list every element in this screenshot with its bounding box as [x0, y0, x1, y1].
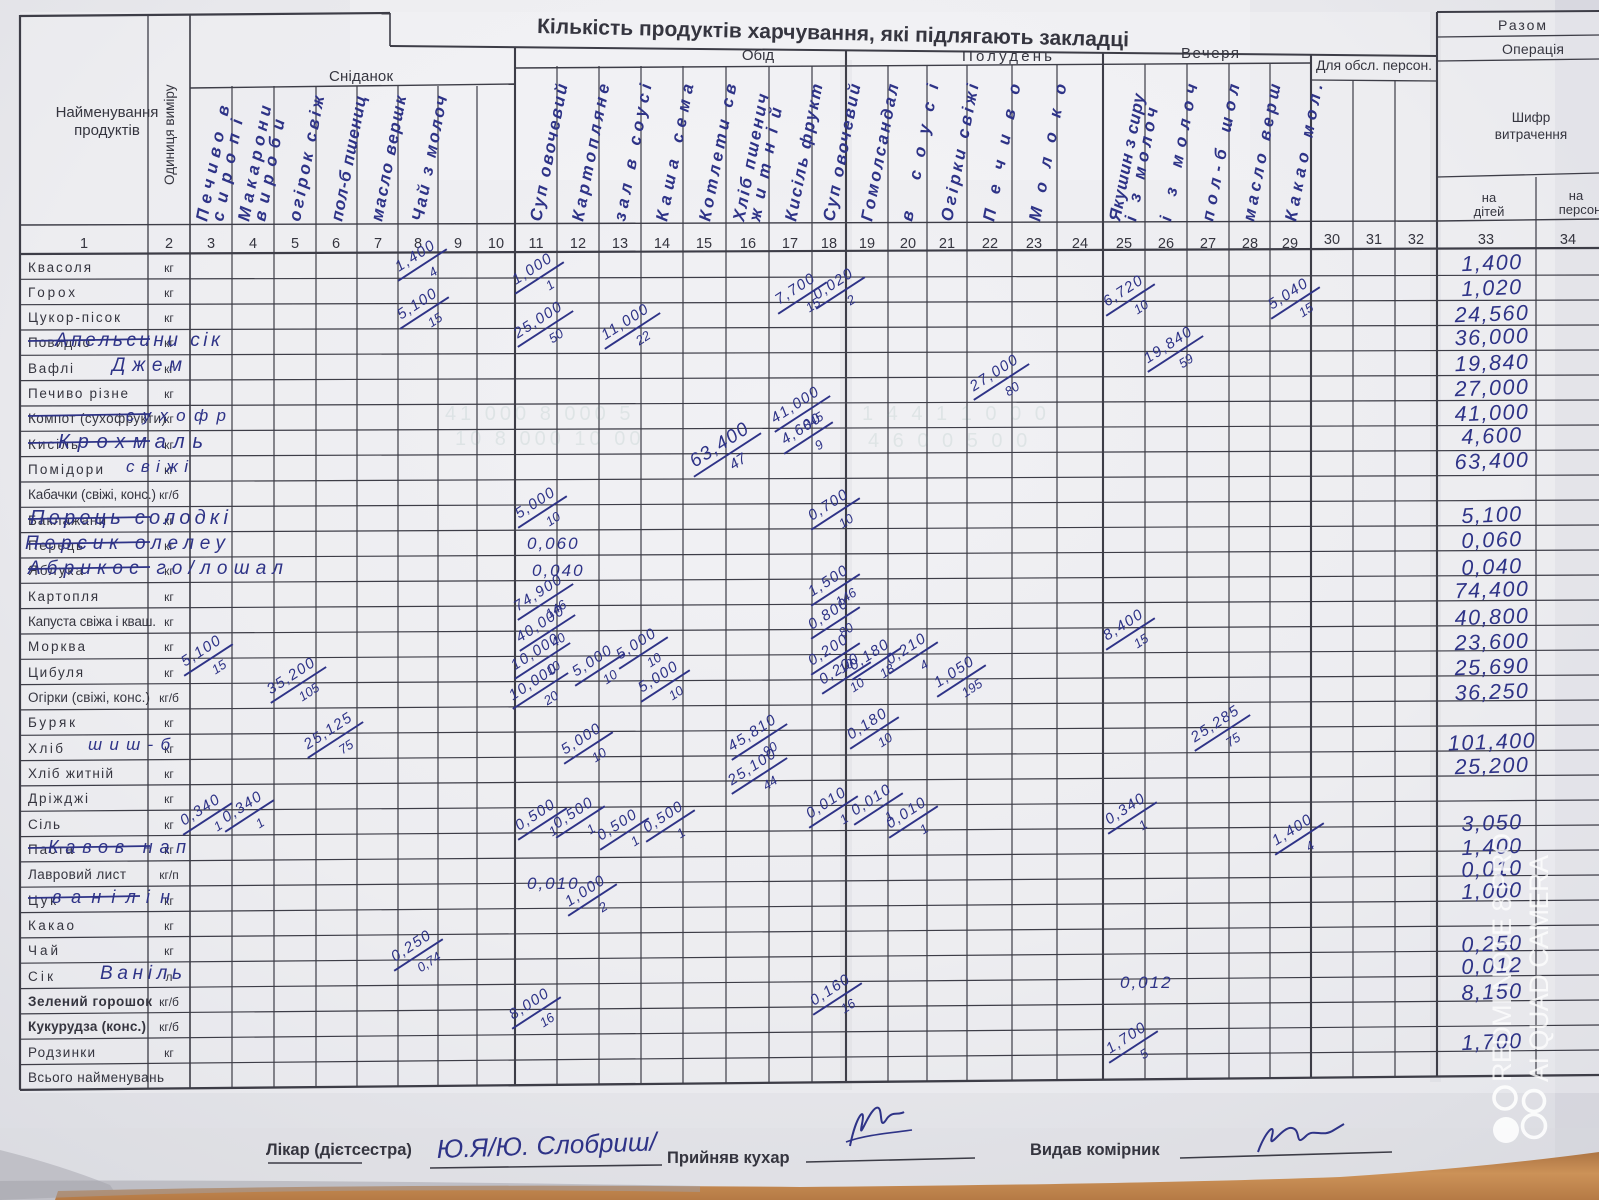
svg-text:Для обсл. персон.: Для обсл. персон. [1316, 57, 1432, 73]
svg-text:21: 21 [939, 236, 955, 252]
svg-text:на: на [1482, 190, 1497, 205]
svg-text:Чай: Чай [28, 943, 58, 958]
svg-text:Цибуля: Цибуля [28, 665, 83, 680]
svg-text:Печиво різне: Печиво різне [28, 386, 128, 401]
svg-text:кг: кг [164, 818, 174, 832]
svg-text:101,400: 101,400 [1447, 728, 1536, 755]
svg-text:10 8 000 10 00: 10 8 000 10 00 [455, 428, 644, 450]
svg-text:кг: кг [164, 944, 174, 958]
svg-text:Сік: Сік [28, 969, 53, 984]
svg-text:кг: кг [164, 615, 174, 629]
svg-text:23,600: 23,600 [1453, 629, 1530, 656]
svg-text:кг: кг [164, 387, 174, 401]
svg-text:27: 27 [1200, 236, 1216, 252]
svg-text:13: 13 [612, 236, 628, 252]
svg-text:кг/б: кг/б [159, 691, 179, 705]
svg-text:кг/б: кг/б [159, 995, 179, 1009]
svg-text:1,020: 1,020 [1461, 275, 1523, 301]
svg-text:Лікар (дієтсестра): Лікар (дієтсестра) [266, 1141, 412, 1159]
svg-text:7: 7 [374, 236, 382, 252]
svg-text:кг: кг [164, 261, 174, 275]
svg-text:продуктів: продуктів [74, 122, 140, 139]
svg-text:Кабачки (свіжі, конс.): Кабачки (свіжі, конс.) [28, 487, 156, 502]
svg-text:5: 5 [291, 236, 299, 252]
svg-text:12: 12 [570, 236, 586, 252]
svg-text:16: 16 [740, 236, 756, 252]
svg-text:Огірки (свіжі, конс.): Огірки (свіжі, конс.) [28, 690, 150, 705]
svg-text:кг: кг [164, 792, 174, 806]
svg-text:Найменування: Найменування [56, 104, 159, 121]
svg-text:15: 15 [696, 236, 712, 252]
svg-text:Всього найменувань: Всього найменувань [28, 1070, 164, 1085]
svg-text:10: 10 [488, 236, 504, 252]
svg-text:дітей: дітей [1474, 204, 1505, 219]
svg-text:витрачення: витрачення [1495, 127, 1567, 142]
svg-text:Хліб житній: Хліб житній [28, 766, 113, 781]
svg-text:6: 6 [332, 236, 340, 252]
svg-text:27,000: 27,000 [1453, 375, 1530, 402]
svg-text:17: 17 [782, 236, 798, 252]
svg-text:Картопля: Картопля [28, 589, 98, 604]
svg-text:25,200: 25,200 [1453, 753, 1530, 780]
svg-text:Видав комірник: Видав комірник [1030, 1141, 1160, 1159]
svg-text:19: 19 [859, 236, 875, 252]
svg-text:кг: кг [164, 919, 174, 933]
svg-text:20: 20 [900, 236, 916, 252]
svg-text:0,040: 0,040 [1461, 554, 1523, 580]
svg-text:кг: кг [164, 716, 174, 730]
svg-text:кг: кг [164, 1046, 174, 1060]
svg-text:кг/б: кг/б [159, 1020, 179, 1034]
svg-text:Зелений горошок: Зелений горошок [28, 994, 152, 1009]
svg-text:кг/п: кг/п [159, 868, 178, 882]
svg-text:кг: кг [164, 666, 174, 680]
svg-text:Сніданок: Сніданок [329, 68, 393, 85]
svg-text:Сіль: Сіль [28, 817, 60, 832]
svg-text:персон: персон [1559, 202, 1599, 217]
svg-text:40,800: 40,800 [1454, 604, 1530, 631]
svg-text:Шифр: Шифр [1512, 110, 1551, 125]
svg-text:0,040: 0,040 [532, 561, 585, 580]
svg-text:Операція: Операція [1502, 41, 1564, 57]
svg-text:1 4 4 1 1 0 0 0: 1 4 4 1 1 0 0 0 [862, 403, 1050, 425]
svg-text:кг: кг [164, 590, 174, 604]
svg-text:кг: кг [164, 767, 174, 781]
svg-text:кг: кг [164, 311, 174, 325]
svg-text:кг/б: кг/б [159, 488, 179, 502]
svg-text:28: 28 [1242, 236, 1258, 252]
svg-text:кг: кг [164, 640, 174, 654]
svg-text:26: 26 [1158, 236, 1174, 252]
svg-text:Обід: Обід [742, 47, 775, 64]
svg-text:29: 29 [1282, 236, 1298, 252]
svg-text:9: 9 [454, 236, 462, 252]
svg-text:Какао: Какао [28, 918, 74, 933]
svg-text:Кукурудза (конс.): Кукурудза (конс.) [28, 1019, 146, 1034]
svg-text:Прийняв кухар: Прийняв кухар [667, 1149, 790, 1167]
svg-text:23: 23 [1026, 236, 1042, 252]
svg-text:AI QUAD CAMERA: AI QUAD CAMERA [1524, 852, 1554, 1082]
svg-text:Капуста свіжа і кваш.: Капуста свіжа і кваш. [28, 614, 156, 629]
svg-text:18: 18 [821, 236, 837, 252]
svg-text:0,060: 0,060 [1461, 527, 1523, 553]
svg-text:Помідори: Помідори [28, 462, 103, 477]
svg-text:Одиниця виміру: Одиниця виміру [162, 84, 177, 185]
svg-text:5,100: 5,100 [1461, 502, 1523, 528]
svg-text:0,010: 0,010 [527, 874, 580, 893]
svg-text:Кисіль: Кисіль [28, 437, 78, 452]
svg-text:36,250: 36,250 [1454, 679, 1530, 706]
svg-text:22: 22 [982, 236, 998, 252]
svg-text:4 6 0 0 5 0 0: 4 6 0 0 5 0 0 [868, 430, 1031, 452]
svg-text:на: на [1569, 188, 1584, 203]
svg-text:Разом: Разом [1498, 17, 1546, 33]
svg-text:41 000 8 000 5: 41 000 8 000 5 [445, 403, 634, 425]
svg-text:34: 34 [1560, 232, 1576, 248]
svg-text:2: 2 [165, 236, 173, 252]
svg-text:14: 14 [654, 236, 670, 252]
svg-text:31: 31 [1366, 232, 1382, 248]
svg-text:Хліб: Хліб [28, 741, 63, 756]
svg-text:4,600: 4,600 [1461, 423, 1523, 449]
svg-text:Квасоля: Квасоля [28, 260, 91, 275]
svg-text:REDMI NOTE 8 PRO: REDMI NOTE 8 PRO [1487, 830, 1517, 1082]
svg-text:36,000: 36,000 [1454, 324, 1530, 351]
svg-text:25: 25 [1116, 236, 1132, 252]
svg-text:11: 11 [528, 236, 543, 252]
svg-text:кг: кг [164, 286, 174, 300]
svg-text:0,060: 0,060 [527, 534, 580, 553]
svg-text:33: 33 [1478, 232, 1494, 248]
svg-text:74,400: 74,400 [1454, 577, 1530, 604]
svg-text:Дріжджі: Дріжджі [28, 791, 88, 806]
svg-text:Морква: Морква [28, 639, 85, 654]
svg-text:24: 24 [1072, 236, 1088, 252]
svg-text:25,690: 25,690 [1453, 654, 1530, 681]
svg-text:1,400: 1,400 [1461, 250, 1523, 276]
svg-text:63,400: 63,400 [1454, 448, 1530, 475]
svg-text:4: 4 [249, 236, 257, 252]
svg-text:Лавровий лист: Лавровий лист [28, 867, 126, 882]
svg-text:30: 30 [1324, 232, 1340, 248]
svg-text:Вафлі: Вафлі [28, 361, 73, 376]
svg-text:1: 1 [80, 236, 88, 252]
svg-text:Родзинки: Родзинки [28, 1045, 95, 1060]
svg-text:32: 32 [1408, 232, 1424, 248]
svg-text:0,012: 0,012 [1120, 973, 1173, 992]
svg-text:3: 3 [207, 236, 215, 252]
svg-text:19,840: 19,840 [1454, 350, 1530, 377]
